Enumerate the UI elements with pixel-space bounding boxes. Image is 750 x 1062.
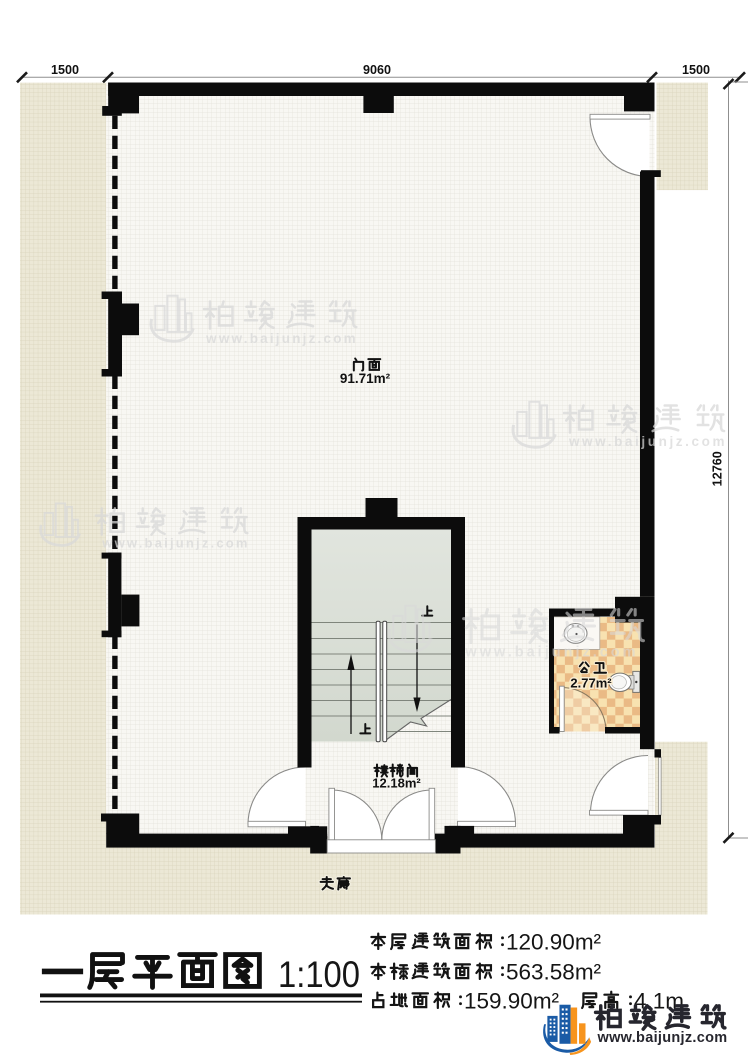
- svg-text:12760: 12760: [711, 451, 725, 486]
- svg-text:www.baijunjz.com: www.baijunjz.com: [597, 1030, 728, 1046]
- svg-text:www.baijunjz.com: www.baijunjz.com: [205, 331, 358, 346]
- svg-text:1500: 1500: [51, 63, 79, 77]
- svg-text:www.baijunjz.com: www.baijunjz.com: [101, 536, 249, 551]
- svg-text:www.baijunjz.com: www.baijunjz.com: [568, 434, 727, 449]
- svg-text:1500: 1500: [682, 63, 710, 77]
- svg-text:159.90m²: 159.90m²: [464, 989, 560, 1014]
- svg-text:563.58m²: 563.58m²: [506, 960, 602, 985]
- svg-text:1:100: 1:100: [278, 954, 360, 995]
- svg-text:91.71m²: 91.71m²: [340, 371, 391, 386]
- svg-text:9060: 9060: [363, 63, 391, 77]
- svg-text:12.18m²: 12.18m²: [372, 776, 421, 791]
- svg-text:120.90m²: 120.90m²: [506, 930, 602, 955]
- svg-text:2.77m²: 2.77m²: [570, 676, 612, 691]
- svg-text:www.baijunjz.com: www.baijunjz.com: [464, 645, 638, 661]
